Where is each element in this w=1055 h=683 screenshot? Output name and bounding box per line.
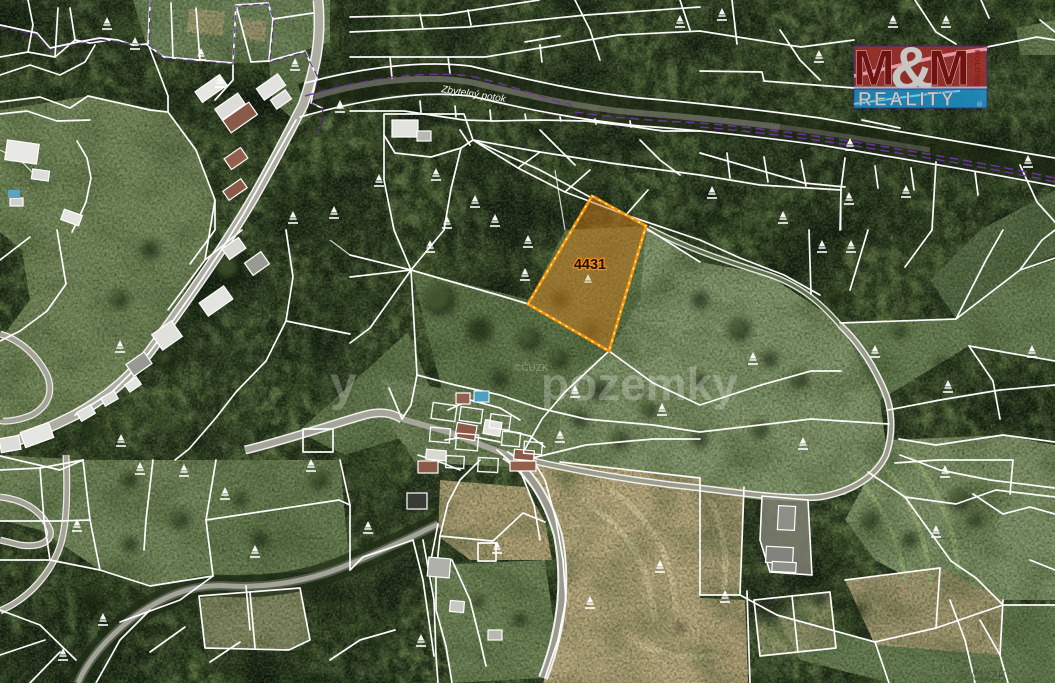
svg-text:© ČÚZK: © ČÚZK [958, 668, 1007, 683]
svg-text:4431: 4431 [574, 257, 606, 273]
svg-text:HOLDING: HOLDING [973, 50, 982, 88]
svg-text:pozemky: pozemky [541, 358, 738, 410]
svg-text:y: y [330, 358, 357, 411]
svg-text:©ČÚZK: ©ČÚZK [514, 361, 549, 374]
svg-text:®: ® [977, 101, 983, 109]
svg-text:REALITY: REALITY [858, 90, 956, 111]
